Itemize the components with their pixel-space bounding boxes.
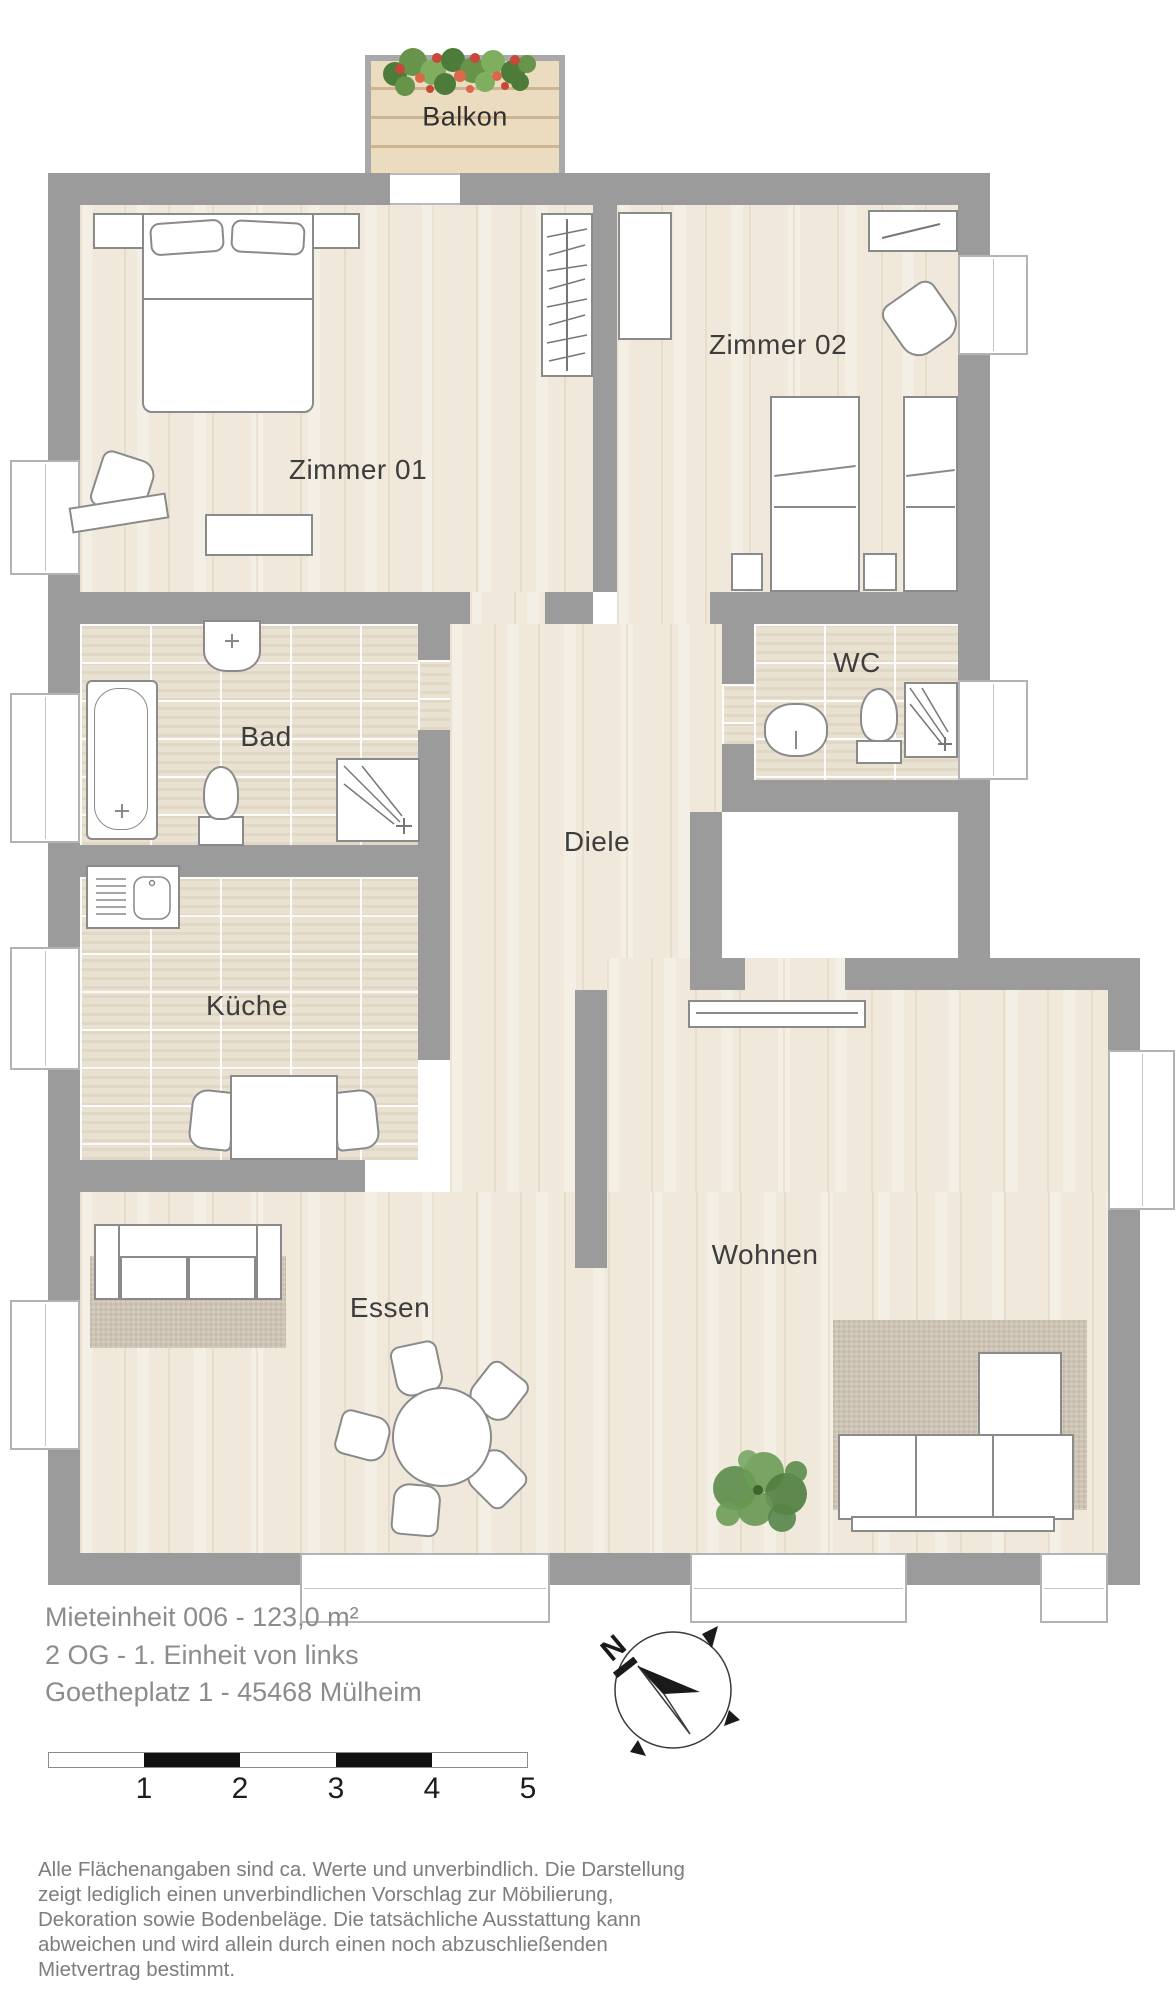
wall [722,744,754,780]
room-label-bad: Bad [240,721,291,753]
sink [203,620,261,672]
sofa-armrest [94,1224,120,1300]
wall [48,173,390,205]
room-label-wc: WC [833,647,881,679]
wall [418,730,450,845]
door-opening [722,684,754,744]
scale-label-5: 5 [520,1772,537,1806]
unit-title: Mieteinheit 006 - 123,0 m² [45,1602,359,1633]
window [10,947,80,1070]
window [958,680,1028,780]
room-label-balkon: Balkon [422,102,508,133]
wall [460,173,990,205]
room-label-diele: Diele [564,826,630,858]
dining-table [230,1075,338,1160]
chair [390,1482,442,1538]
faucet [121,804,123,818]
window [690,1553,907,1623]
floorplan-canvas: Balkon [0,0,1176,2000]
disclaimer-line: abweichen und wird allein durch einen no… [38,1933,608,1957]
wall [710,592,958,624]
wall [418,624,450,660]
toilet [198,816,244,846]
faucet [795,731,797,749]
wall [48,1553,1140,1585]
wall [690,958,745,990]
sofa-seat [188,1256,256,1300]
blanket-line [906,506,955,508]
flower-box [375,30,545,98]
wall [80,1160,365,1192]
sofa-cushion-line [915,1436,917,1518]
faucet [231,634,233,648]
wall [545,592,593,624]
disclaimer-line: Dekoration sowie Bodenbeläge. Die tatsäc… [38,1908,641,1932]
window [10,1300,80,1450]
scale-label-3: 3 [328,1772,345,1806]
unit-address: Goetheplatz 1 - 45468 Mülheim [45,1677,422,1708]
door-opening [418,660,450,730]
scale-label-2: 2 [232,1772,249,1806]
window [10,693,80,843]
single-bed [770,396,860,592]
shower [904,682,958,758]
blanket-line [144,298,312,300]
wardrobe-hangers [541,213,593,377]
scale-bar-segment [144,1753,240,1767]
sofa-seat [120,1256,188,1300]
wall [690,812,722,958]
sofa-cushion-line [992,1436,994,1518]
sink [764,703,828,757]
wall [593,205,617,592]
wall [722,624,754,684]
nightstand [863,553,897,591]
compass-rose: N [598,1622,748,1782]
toilet-bowl [860,688,898,742]
blanket-line [774,506,856,508]
single-bed [903,396,958,592]
unit-floor: 2 OG - 1. Einheit von links [45,1640,359,1671]
tv-sideboard-line [696,1012,858,1014]
sofa-armrest [256,1224,282,1300]
window [1108,1050,1175,1210]
toilet [856,740,902,764]
toilet-bowl [203,766,239,820]
scale-bar-segment [336,1753,432,1767]
room-label-kueche: Küche [206,990,288,1022]
sofa-back [851,1516,1055,1532]
door-opening [617,592,710,624]
pillow [149,218,225,256]
disclaimer-line: Mietvertrag bestimmt. [38,1958,235,1982]
disclaimer-line: Alle Flächenangaben sind ca. Werte und u… [38,1858,685,1882]
nightstand [731,553,763,591]
room-label-wohnen: Wohnen [712,1239,819,1271]
scale-label-1: 1 [136,1772,153,1806]
wall [722,780,990,812]
floor-diele [450,624,722,958]
disclaimer-line: zeigt lediglich einen unverbindlichen Vo… [38,1883,613,1907]
wall [845,958,958,990]
round-table [392,1387,492,1487]
desk [868,210,958,252]
window [1040,1553,1108,1623]
window [958,255,1028,355]
bathtub [86,680,158,840]
scale-label-4: 4 [424,1772,441,1806]
kitchen-sink-counter [86,865,180,929]
room-label-zimmer02: Zimmer 02 [709,329,847,361]
door-opening [470,592,545,624]
wall [418,877,450,1060]
chair [331,1088,381,1152]
scale-bar [48,1752,528,1768]
tv-sideboard [688,1000,866,1028]
sofa-back [94,1224,282,1258]
sofa-seat [838,1434,1074,1520]
room-label-zimmer01: Zimmer 01 [289,454,427,486]
wardrobe [618,212,672,340]
balcony-door [390,173,460,205]
sideboard [205,514,313,556]
pillow [230,219,306,256]
wall [958,958,1140,990]
room-label-essen: Essen [350,1292,430,1324]
wall [575,990,607,1268]
shower [336,758,420,842]
plant [700,1438,820,1543]
wall [80,592,470,624]
sofa-chaise [978,1352,1062,1446]
